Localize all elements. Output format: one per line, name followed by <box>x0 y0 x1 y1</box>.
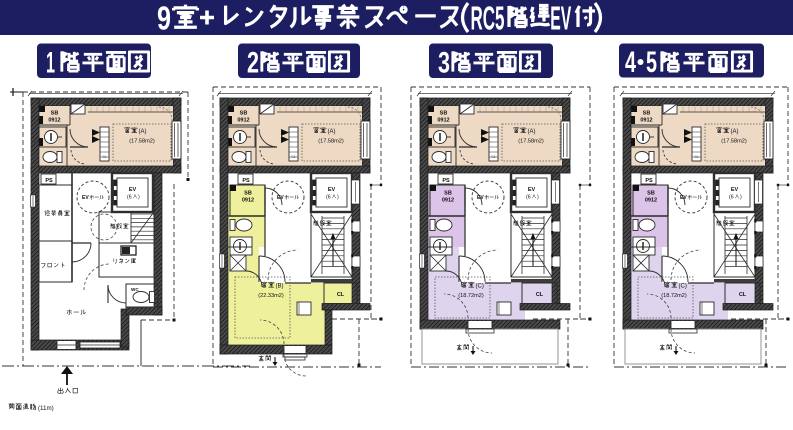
svg-text:EV: EV <box>82 195 89 201</box>
svg-text:(17.58m2): (17.58m2) <box>518 139 544 145</box>
svg-text:): ) <box>740 195 742 201</box>
svg-text:(17.58m2): (17.58m2) <box>721 139 747 145</box>
svg-text:CL: CL <box>491 155 495 159</box>
svg-text:SB: SB <box>647 191 655 197</box>
svg-text:(6: (6 <box>729 195 734 201</box>
svg-text:0912: 0912 <box>645 198 657 204</box>
svg-text:3: 3 <box>438 47 450 80</box>
svg-text:CL: CL <box>536 292 544 298</box>
svg-text:EV: EV <box>477 195 484 201</box>
svg-text:WC: WC <box>131 287 139 292</box>
svg-text:CL: CL <box>337 292 345 298</box>
svg-text:EV: EV <box>129 187 137 193</box>
svg-text:(6: (6 <box>326 195 331 201</box>
svg-text:(B): (B) <box>276 284 284 290</box>
svg-text:(18.72m2): (18.72m2) <box>458 293 484 299</box>
svg-text:SB: SB <box>51 111 59 117</box>
svg-text:(A): (A) <box>731 129 739 135</box>
svg-text:0912: 0912 <box>242 198 254 204</box>
svg-text:0912: 0912 <box>640 118 652 124</box>
svg-text:PS: PS <box>442 178 450 184</box>
svg-text:SB: SB <box>444 191 452 197</box>
svg-text:(A): (A) <box>139 129 147 135</box>
svg-text:EV: EV <box>277 195 284 201</box>
svg-text:(18.72m2): (18.72m2) <box>661 293 687 299</box>
svg-text:(11m): (11m) <box>38 405 54 412</box>
svg-text:CL: CL <box>694 155 698 159</box>
svg-text:EV: EV <box>328 187 336 193</box>
svg-text:SB: SB <box>440 111 448 117</box>
svg-text:RC5: RC5 <box>471 0 505 37</box>
svg-text:PS: PS <box>45 178 53 184</box>
svg-text:(A): (A) <box>528 129 536 135</box>
svg-text:1: 1 <box>46 47 55 80</box>
svg-text:9: 9 <box>157 0 171 37</box>
svg-text:PS: PS <box>242 178 250 184</box>
svg-text:(22.33m2): (22.33m2) <box>258 293 284 299</box>
svg-text:(C): (C) <box>679 284 687 290</box>
svg-text:EV: EV <box>528 187 536 193</box>
svg-text:): ) <box>337 195 339 201</box>
svg-text:EV: EV <box>680 195 687 201</box>
svg-text:5: 5 <box>646 46 657 79</box>
svg-text:0912: 0912 <box>442 198 454 204</box>
svg-text:): ) <box>138 195 140 201</box>
svg-text:SB: SB <box>244 191 252 197</box>
svg-text:(A): (A) <box>328 129 336 135</box>
svg-text:CL: CL <box>102 155 106 159</box>
svg-text:PS: PS <box>645 178 653 184</box>
svg-text:EV: EV <box>550 0 571 37</box>
svg-text:CL: CL <box>739 292 747 298</box>
svg-text:EV: EV <box>731 187 739 193</box>
svg-text:2: 2 <box>247 47 259 80</box>
svg-text:): ) <box>537 195 539 201</box>
svg-text:(6: (6 <box>127 195 132 201</box>
svg-text:0912: 0912 <box>48 118 60 124</box>
svg-text:(C): (C) <box>476 284 484 290</box>
svg-text:(6: (6 <box>526 195 531 201</box>
svg-text:4: 4 <box>625 46 636 79</box>
svg-text:(17.58m2): (17.58m2) <box>129 139 155 145</box>
svg-text:0912: 0912 <box>237 118 249 124</box>
svg-text:SB: SB <box>643 111 651 117</box>
svg-text:SB: SB <box>240 111 248 117</box>
svg-text:(17.58m2): (17.58m2) <box>318 139 344 145</box>
svg-text:0912: 0912 <box>437 118 449 124</box>
svg-text:CL: CL <box>291 155 295 159</box>
